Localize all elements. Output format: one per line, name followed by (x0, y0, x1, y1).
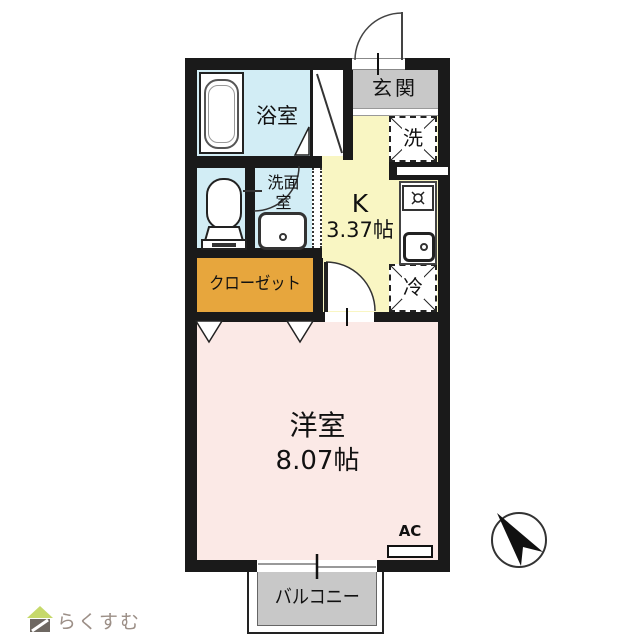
kitchen-label: K (320, 190, 400, 219)
logo-text: らくすむ (57, 612, 177, 634)
bathroom-door-mark (295, 127, 309, 155)
closet-door-mark-right (287, 321, 313, 342)
balcony-label: バルコニー (257, 587, 377, 609)
logo-house-icon (27, 606, 53, 632)
floorplan-page: { "colors": { "wall": "#1a1a1a", "wet": … (0, 0, 640, 640)
fridge-label: 冷 (389, 276, 437, 299)
closet-label: クローゼット (197, 275, 313, 295)
balcony-sliding-door (258, 554, 376, 579)
washroom-label: 洗面 室 (255, 173, 312, 213)
toilet-fixture (202, 179, 246, 249)
plan-symbols (0, 0, 640, 640)
closet-door-mark-left (196, 321, 222, 342)
kitchen-size: 3.37帖 (318, 218, 402, 242)
bathroom-label: 浴室 (240, 104, 314, 128)
hall-door-panel (317, 74, 342, 153)
compass-icon (492, 513, 546, 567)
bedroom-size: 8.07帖 (197, 447, 438, 477)
bedroom-label: 洋室 (197, 410, 438, 442)
entrance-label: 玄関 (352, 77, 438, 100)
entrance-door-swing (355, 12, 402, 75)
bedroom-door-swing (324, 262, 375, 326)
burner-icon (412, 192, 424, 204)
ac-label: AC (387, 523, 433, 540)
washer-label: 洗 (389, 127, 437, 150)
